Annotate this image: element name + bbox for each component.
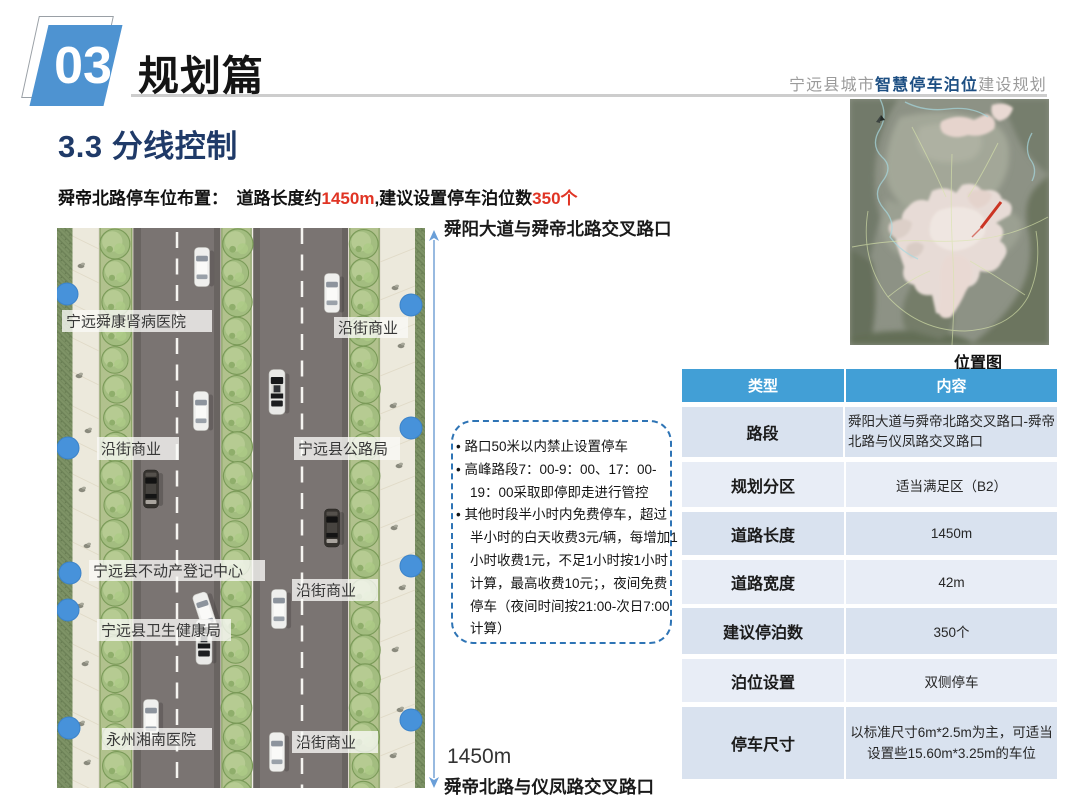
svg-text:沿街商业: 沿街商业 (101, 441, 161, 458)
svg-text:宁远县不动产登记中心: 宁远县不动产登记中心 (93, 563, 243, 580)
svg-text:沿街商业: 沿街商业 (296, 583, 356, 600)
svg-text:永州湘南医院: 永州湘南医院 (106, 731, 196, 749)
svg-text:宁远县卫生健康局: 宁远县卫生健康局 (101, 623, 221, 640)
svg-text:沿街商业: 沿街商业 (296, 735, 356, 752)
svg-text:宁远舜康肾病医院: 宁远舜康肾病医院 (66, 313, 186, 331)
svg-text:沿街商业: 沿街商业 (338, 320, 398, 337)
svg-text:宁远县公路局: 宁远县公路局 (298, 441, 388, 458)
